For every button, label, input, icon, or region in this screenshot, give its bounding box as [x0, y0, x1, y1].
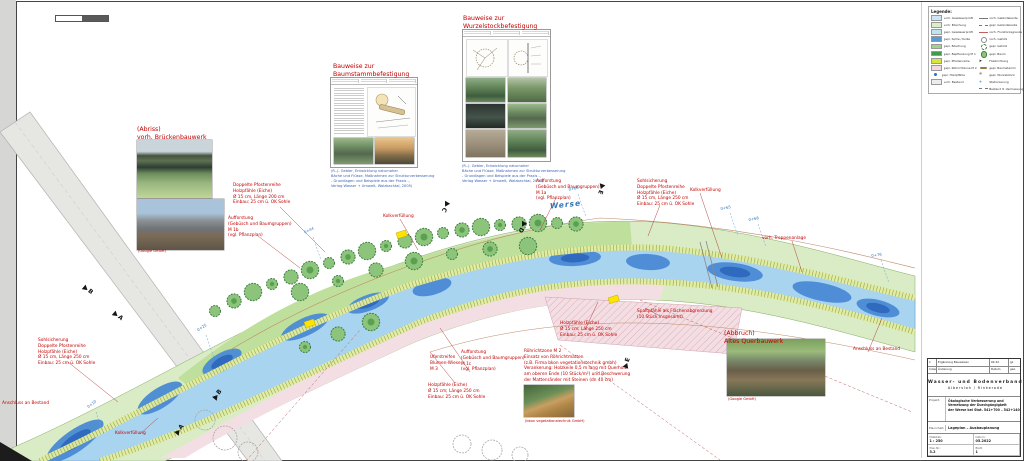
plan-label: Planinhalt: — [928, 425, 946, 431]
annotation: Doppelte PfostenreiheHolzpfähle (Eiche)Ø… — [233, 183, 290, 206]
legend-swatch — [931, 51, 942, 57]
annotation: vorh. Treppenanlage — [762, 236, 806, 242]
legend-glyph-thin — [979, 30, 988, 35]
annotation: (Google GmbH) — [138, 249, 166, 254]
legend-swatch — [931, 44, 942, 50]
revision-row: 1Ergänzung Bauweisen04.22gz — [928, 359, 1020, 367]
photo-old-weir — [727, 339, 825, 396]
legend-item: gepl. Gehölz — [979, 43, 1024, 50]
project-field: Projekt: Ökologische Verbesserung und Ve… — [928, 397, 1020, 422]
legend-swatch — [931, 15, 942, 21]
organisation-field: Wasser- und Bodenverband Albersloh / Rin… — [928, 374, 1020, 397]
legend-item: vorh. Bestand — [931, 78, 977, 85]
legend-item: gepl. Sohle / Kolke — [931, 36, 977, 43]
annotation: Holzpfähle (Eiche)Ø 15 cm; Länge 250 cmE… — [428, 383, 485, 400]
detail-panel-rootwad-anchoring — [462, 29, 551, 162]
legend-item: gepl. Holzpfähle — [931, 71, 977, 78]
legend-glyph-dash — [979, 86, 988, 91]
legend-item: Bestand lt. Vermessung — [979, 85, 1024, 92]
legend-item: vorh. Böschung — [931, 22, 977, 29]
legend-glyph-root: ✳ — [979, 72, 988, 77]
legend: Legende: vorh. Gewässerprofilvorh. Bösch… — [928, 6, 1021, 94]
plan-sheet: (Abriss)vorh. Brückenbauwerk(Google GmbH… — [0, 0, 1024, 461]
annotation: Bauweise zurWurzelstockbefestigung — [463, 15, 537, 31]
panel-photo-1 — [466, 78, 505, 102]
legend-swatch — [931, 29, 942, 35]
legend-swatch — [931, 73, 940, 77]
project-label: Projekt: — [928, 397, 946, 421]
annotation: Spaltpfähle als Flächenabgrenzung(10 Stü… — [637, 309, 713, 321]
legend-swatch — [931, 22, 942, 28]
meta-cell: Blatt:1 — [974, 445, 1020, 456]
legend-right-column: vorh. Geländekantegepl. Geländekantevorh… — [979, 15, 1024, 93]
legend-item: ➤Fließrichtung — [979, 57, 1024, 64]
panel-photo-4 — [508, 104, 546, 128]
annotation: Bauweise zurBaumstammbefestigung — [333, 63, 409, 79]
legend-item: gepl. Bepflanzung M 1 — [931, 50, 977, 57]
legend-glyph-tree — [979, 51, 988, 56]
panel-photo-3 — [466, 104, 505, 128]
legend-item: +Stationierung — [979, 78, 1024, 85]
plan-title: Lageplan – Ausbauplanung — [946, 426, 1001, 430]
legend-swatch — [931, 79, 942, 85]
legend-item: gepl. Röhrichtzone M 2 — [931, 64, 977, 71]
legend-title: Legende: — [931, 9, 1018, 14]
annotation: UferstreifenBlumen-WieseM 3 — [430, 355, 461, 372]
legend-glyph-circle — [979, 37, 988, 42]
detail-panel-log-anchoring — [330, 77, 418, 168]
meta-cell: Datum:05.2022 — [974, 434, 1020, 445]
panel-photo-5 — [466, 130, 505, 157]
photo-bridge — [137, 140, 212, 198]
legend-item: vorh. Gehölz — [979, 36, 1024, 43]
meta-cell: Maßstab:1 : 250 — [928, 434, 974, 445]
organisation-sub: Albersloh / Rinkerode — [928, 386, 1023, 390]
panel-photo-6 — [508, 130, 546, 157]
annotation: (Abbruch)Altes Querbauwerk — [724, 330, 783, 346]
revision-table: 1Ergänzung Bauweisen04.22gzIndexÄnderung… — [928, 359, 1020, 374]
plan-field: Planinhalt: Lageplan – Ausbauplanung — [928, 422, 1020, 434]
legend-item: vorh. Geländekante — [979, 15, 1024, 22]
photo-weir — [137, 199, 224, 250]
panel-header — [463, 30, 550, 37]
legend-item: gepl. Pfostenreihe — [931, 57, 977, 64]
legend-glyph-line — [979, 16, 988, 21]
annotation: SohlsicherungDoppelte PfostenreiheHolzpf… — [38, 338, 95, 367]
panel-text-block — [334, 88, 364, 134]
legend-item: gepl. Gewässerprofil — [931, 29, 977, 36]
legend-item: gepl. Baumstamm — [979, 64, 1024, 71]
annotation: Kolkverfüllung — [383, 214, 414, 220]
legend-left-column: vorh. Gewässerprofilvorh. Böschunggepl. … — [931, 15, 977, 93]
legend-glyph-log — [979, 65, 988, 70]
legend-glyph-dash — [979, 23, 988, 28]
legend-item: gepl. Baum — [979, 50, 1024, 57]
annotation: SohlsicherungDoppelte PfostenreiheHolzpf… — [637, 179, 694, 208]
legend-item: vorh. Gewässerprofil — [931, 15, 977, 22]
annotation: Kolkverfüllung — [115, 431, 146, 437]
panel-sketch — [367, 87, 416, 137]
annotation: Aufforstung(Gebüsch und Baumgruppen)M 1c… — [461, 350, 525, 373]
panel-sketch-left — [466, 39, 508, 77]
annotation: (Google GmbH) — [728, 397, 756, 402]
annotation: (Abriss)vorh. Brückenbauwerk — [137, 126, 207, 142]
annotation: Holzpfähle (Eiche)Ø 15 cm; Länge 250 cmE… — [560, 321, 617, 338]
annotation: Aufforstung(Gebüsch und Baumgruppen)M 1b… — [228, 216, 292, 239]
annotation: (R.-J. Gebler, Entwicklung naturnaherBäc… — [331, 169, 434, 188]
panel-header — [331, 78, 417, 85]
legend-glyph-tick: + — [979, 79, 988, 84]
legend-swatch — [931, 36, 942, 42]
title-block: 1Ergänzung Bauweisen04.22gzIndexÄnderung… — [927, 358, 1021, 457]
project-line: der Werse bei Stat. 541+700 – 542+140 — [948, 408, 1018, 413]
legend-glyph-arrow: ➤ — [979, 58, 988, 63]
legend-glyph-scallop — [979, 44, 988, 49]
panel-photo-2 — [375, 138, 414, 164]
photo-reed-mat — [524, 385, 574, 417]
annotation: Kolkverfüllung — [690, 188, 721, 194]
legend-item: ✳gepl. Wurzelstock — [979, 71, 1024, 78]
panel-sketch-right — [508, 39, 548, 77]
legend-swatch — [931, 65, 942, 71]
legend-item: vorh. Flurstücksgrenze — [979, 29, 1024, 36]
annotation: Anschluss an Bestand — [853, 347, 900, 353]
annotation: (bkon vegetationstechnik GmbH) — [525, 419, 585, 424]
annotation: Anschluss an Bestand — [2, 401, 49, 407]
revision-row: IndexÄnderungDatumgez. — [928, 367, 1020, 375]
annotation: Röhrichtzone M 2Einsatz von Röhrichtmatt… — [524, 349, 630, 384]
meta-cells: Maßstab:1 : 250Datum:05.2022Plan-Nr.:3.2… — [928, 434, 1020, 456]
panel-photo-2 — [508, 78, 546, 102]
scale-bar — [55, 15, 109, 22]
panel-photo-1 — [334, 138, 373, 164]
legend-swatch — [931, 58, 942, 64]
meta-cell: Plan-Nr.:3.2 — [928, 445, 974, 456]
legend-item: gepl. Geländekante — [979, 22, 1024, 29]
organisation-name: Wasser- und Bodenverband — [928, 380, 1023, 385]
legend-item: gepl. Böschung — [931, 43, 977, 50]
